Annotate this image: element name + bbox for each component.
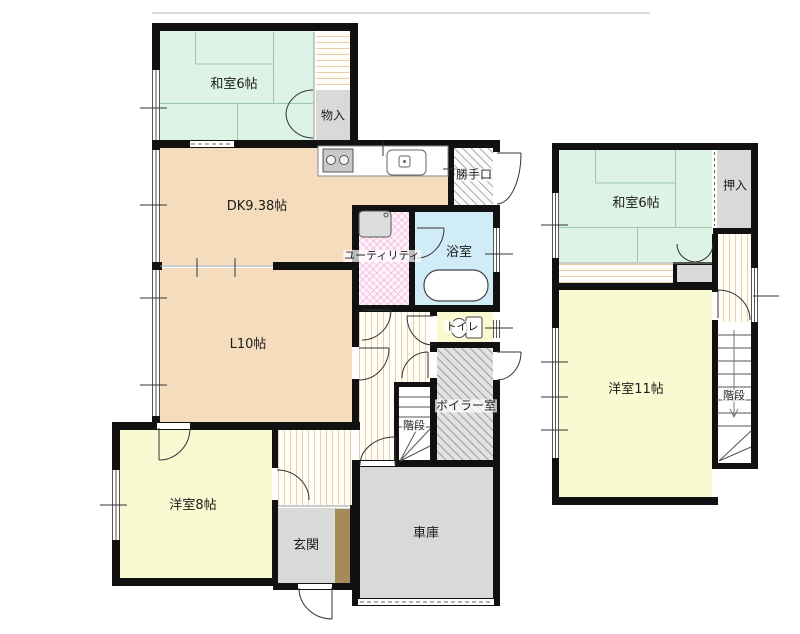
wall-segment [352, 305, 500, 312]
door-opening [190, 141, 234, 147]
wall-segment [493, 462, 500, 606]
window [152, 270, 160, 416]
wall-segment [273, 262, 358, 270]
closet-niche-2f [677, 265, 714, 282]
wall-segment [448, 148, 454, 208]
wall-segment [552, 290, 559, 328]
door-opening [712, 292, 718, 320]
floor-plan-canvas: 和室6帖 物入 DK9.38帖 勝手口 ユーティリティ 浴室 L10帖 トイレ … [0, 0, 800, 634]
hallway-main [359, 312, 430, 382]
wall-segment [713, 228, 758, 234]
window [152, 70, 160, 143]
wall-segment [430, 342, 500, 348]
room-label-stairs-1f: 階段 [402, 420, 426, 432]
katteguchi-door [497, 153, 521, 204]
window [552, 328, 559, 458]
room-label-toilet: トイレ [445, 321, 480, 333]
room-label-living: L10帖 [230, 338, 267, 352]
wall-segment [272, 428, 278, 584]
veranda-strip-2f [559, 264, 673, 283]
hallway-entrance [278, 428, 352, 505]
garage-door-opening [358, 599, 494, 605]
door-opening [430, 352, 437, 378]
room-label-stairs-2f: 階段 [722, 390, 746, 402]
room-label-washitsu-2f: 和室6帖 [612, 197, 659, 211]
door-opening [430, 316, 437, 342]
wall-segment [350, 140, 500, 148]
entrance-door [299, 587, 332, 619]
room-label-katteguchi: 勝手口 [455, 168, 493, 181]
wall-segment [112, 422, 360, 430]
room-label-genkan: 玄関 [293, 539, 319, 553]
window [112, 470, 120, 540]
door-opening [360, 461, 395, 466]
room-label-utility: ユーティリティ [343, 250, 421, 262]
wall-segment [712, 463, 758, 469]
room-label-boiler: ボイラー室 [435, 399, 497, 412]
wall-segment [152, 23, 160, 70]
veranda-strip-1f [316, 32, 350, 85]
wall-segment [112, 578, 278, 586]
room-label-dk: DK9.38帖 [227, 200, 287, 214]
room-label-monoire: 物入 [321, 109, 345, 122]
door-opening [493, 352, 500, 380]
wall-segment [552, 283, 718, 290]
door-opening [493, 152, 500, 208]
wall-segment [552, 143, 559, 193]
wall-segment [352, 205, 500, 212]
room-label-yoshitsu-8: 洋室8帖 [169, 499, 216, 513]
room-label-yoshitsu-11: 洋室11帖 [608, 383, 664, 397]
wall-segment [152, 23, 358, 31]
room-label-washitsu-1f: 和室6帖 [210, 78, 257, 92]
door-opening [157, 423, 190, 429]
door-opening [352, 347, 359, 379]
window [751, 268, 758, 322]
door-opening [298, 584, 332, 589]
wall-segment [152, 262, 162, 270]
wall-segment [394, 387, 399, 463]
room-label-bathroom: 浴室 [446, 246, 472, 260]
wall-segment [350, 23, 358, 148]
boiler-outside-door [497, 352, 521, 380]
wall-segment [350, 505, 357, 583]
window [152, 150, 160, 262]
wall-segment [712, 234, 718, 468]
wall-segment [152, 140, 358, 148]
hallway-2f [717, 234, 751, 322]
room-label-garage: 車庫 [413, 527, 439, 541]
genkan-step [335, 509, 350, 583]
room-label-oshiire: 押入 [723, 179, 747, 192]
window [493, 228, 500, 272]
wall-segment [552, 497, 718, 505]
wall-segment [112, 430, 120, 470]
wall-segment [394, 382, 435, 387]
window [493, 320, 500, 338]
window [552, 193, 559, 258]
wall-segment [552, 143, 758, 150]
door-opening [272, 468, 278, 500]
hallway-stairs-side [359, 382, 394, 460]
